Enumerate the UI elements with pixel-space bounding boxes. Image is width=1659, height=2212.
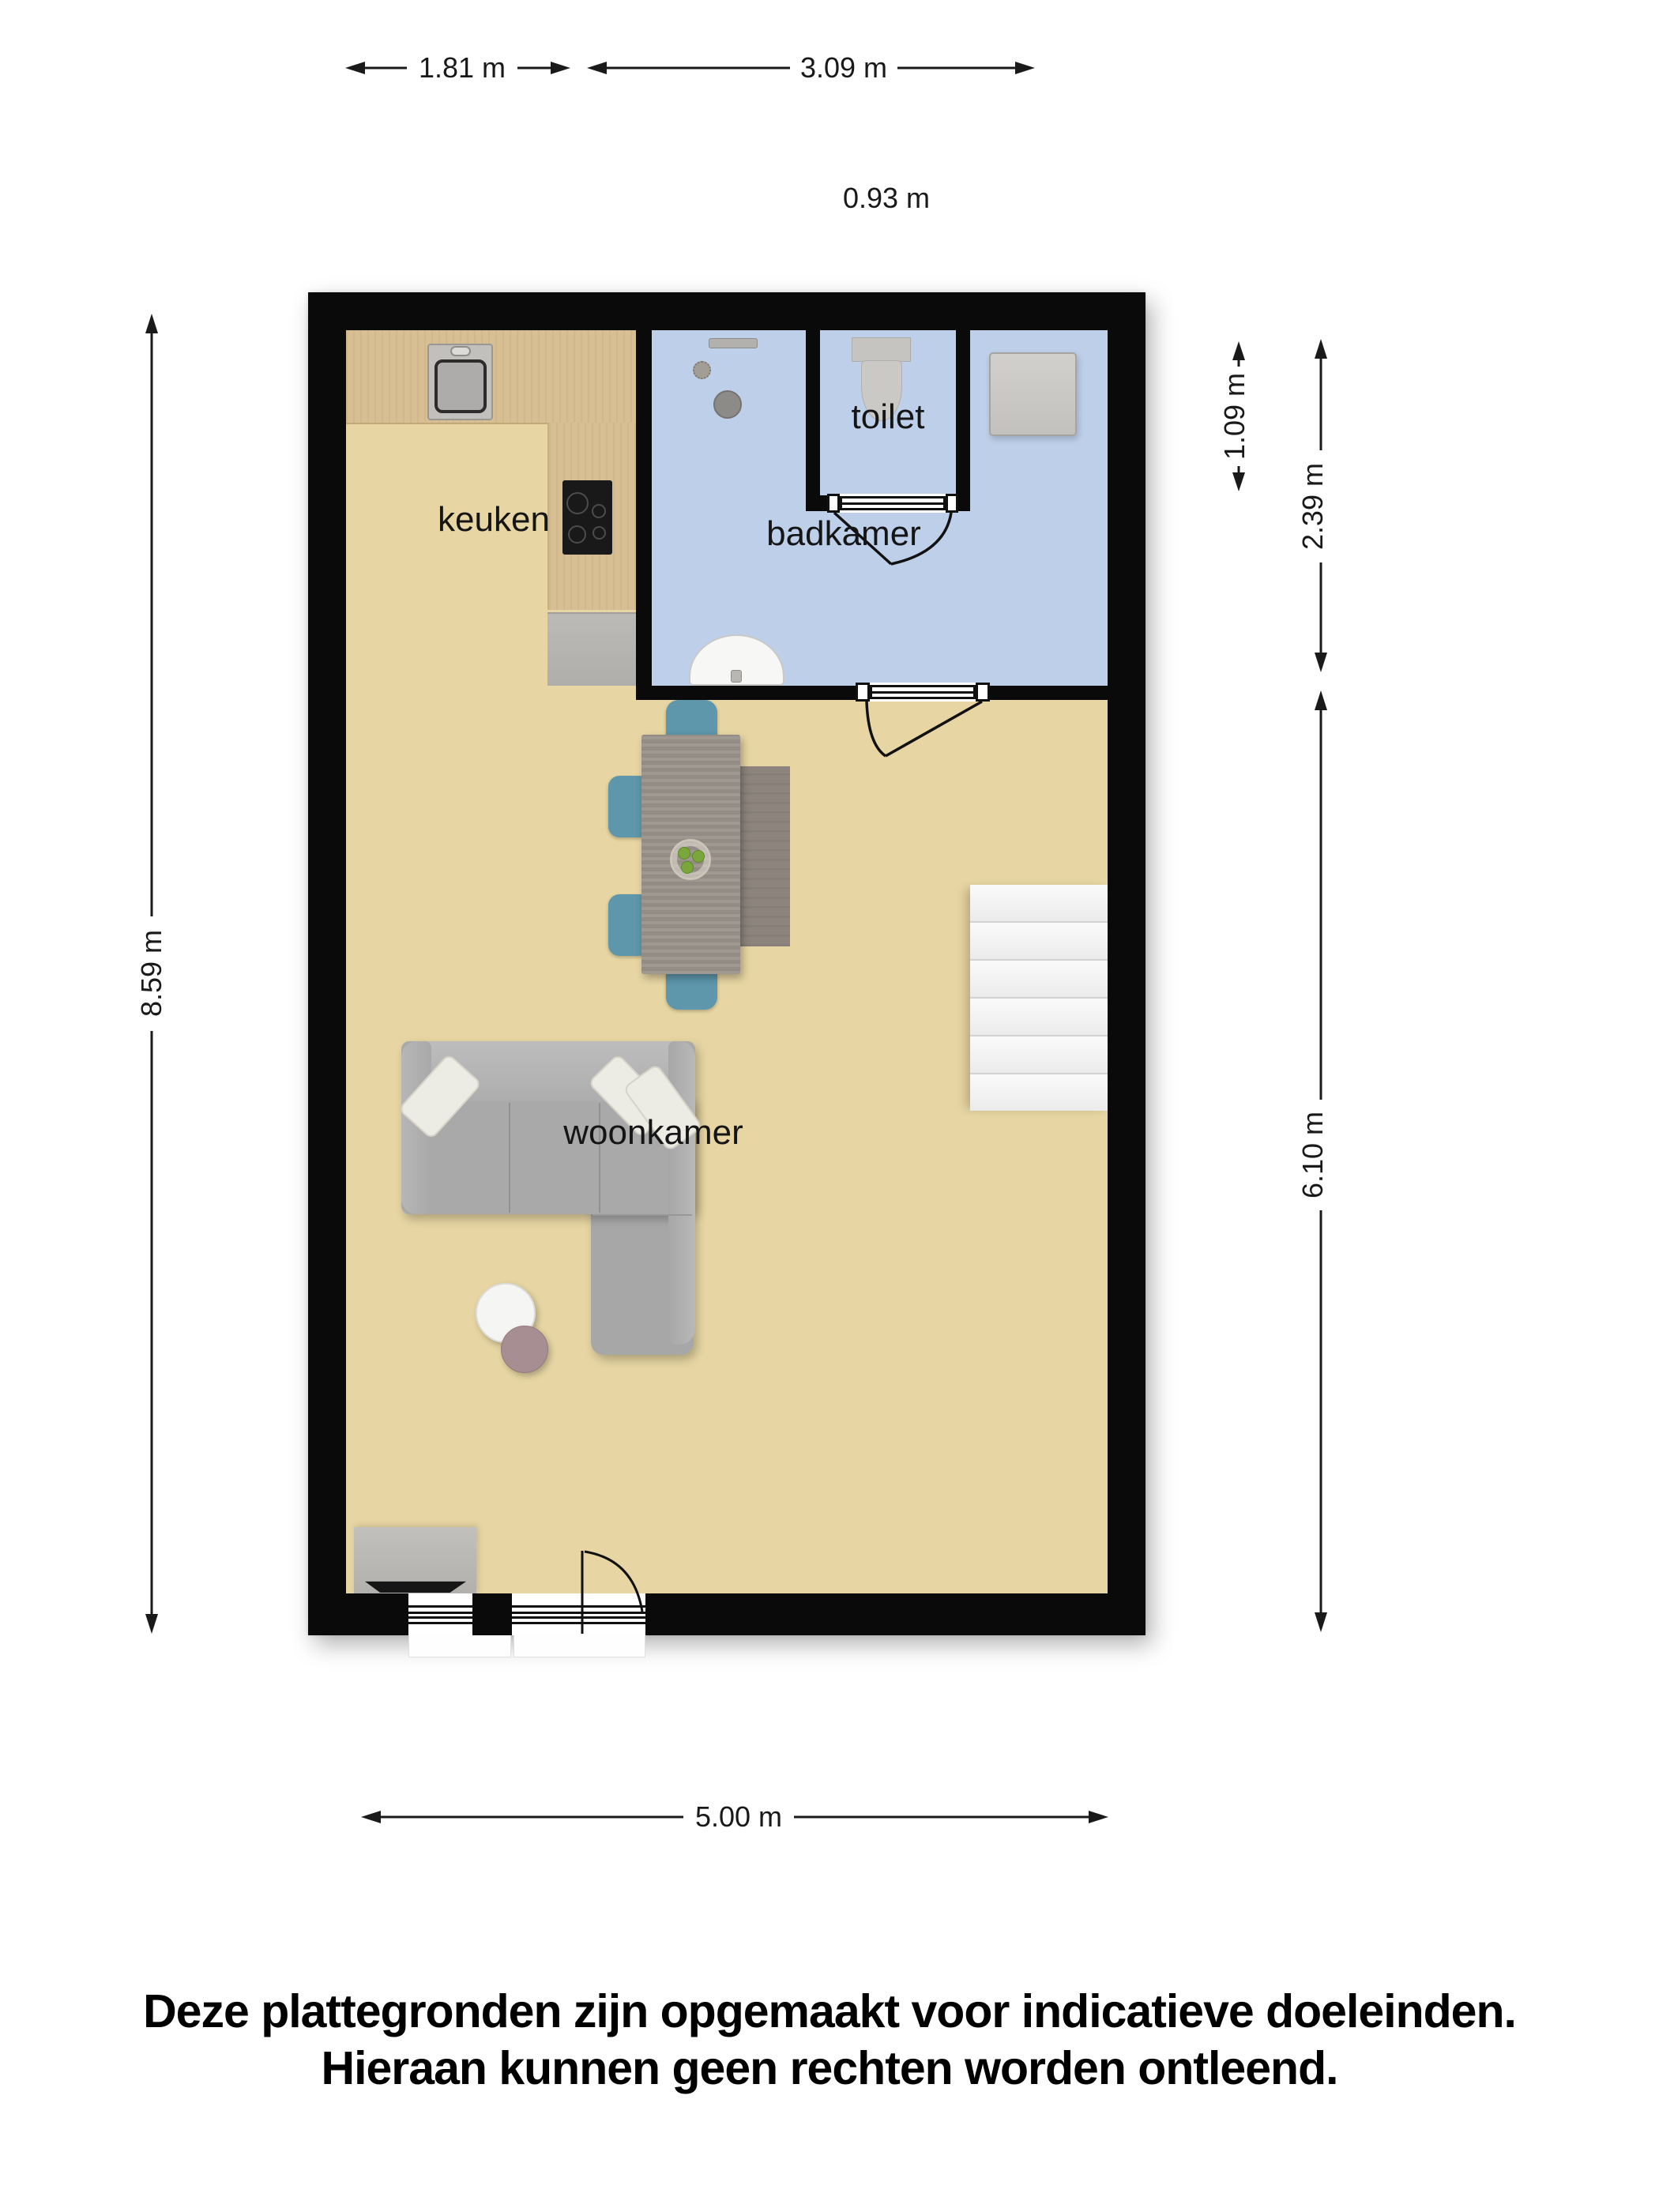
dim-label-8-59: 8.59 m <box>134 898 169 1048</box>
bathroom-door-post <box>976 683 990 702</box>
shower-drain-icon <box>693 361 711 379</box>
dim-label-0-93: 0.93 m <box>811 181 961 216</box>
sofa-seam <box>592 1214 692 1216</box>
toilet-door-post <box>946 494 958 513</box>
disclaimer-line-1: Deze plattegronden zijn opgemaakt voor i… <box>0 1984 1659 2038</box>
outer-wall-top <box>308 292 1145 330</box>
shower-arm-icon <box>709 338 758 348</box>
dim-arrow <box>145 1614 158 1634</box>
toilet-south-wall-stub <box>820 495 827 511</box>
dining-chair <box>666 969 717 1010</box>
sofa-seam <box>509 1103 510 1213</box>
outer-wall-right <box>1108 292 1145 1635</box>
dim-label-5-00: 5.00 m <box>664 1800 814 1834</box>
tv <box>365 1580 466 1593</box>
outer-wall-bottom-seg <box>472 1593 512 1635</box>
stair-tread <box>970 885 1108 923</box>
shower-head-icon <box>713 390 742 419</box>
bathroom-south-wall-seg <box>652 686 856 700</box>
entrance-door-frame <box>582 1605 645 1624</box>
dim-arrow <box>1315 1612 1327 1632</box>
outer-wall-bottom-seg <box>308 1593 408 1635</box>
dim-label-1-81: 1.81 m <box>387 51 537 85</box>
floor-plan: keuken toilet badkamer woonkamer 1.81 m … <box>0 0 1659 2212</box>
dim-arrow <box>1315 690 1327 710</box>
kitchen-appliance <box>547 612 636 686</box>
outer-wall-left <box>308 292 346 1635</box>
dim-label-2-39: 2.39 m <box>1296 431 1330 581</box>
dim-arrow <box>145 314 158 333</box>
dim-arrow <box>1089 1811 1108 1823</box>
toilet-south-wall-stub <box>958 495 970 511</box>
kitchen-faucet-icon <box>450 346 471 356</box>
toilet-door-post <box>827 494 840 513</box>
dim-label-3-09: 3.09 m <box>769 51 919 85</box>
window-sill <box>513 1635 645 1657</box>
dim-arrow <box>361 1811 381 1823</box>
room-label-bathroom: badkamer <box>717 513 970 555</box>
fruit-bowl-icon <box>670 839 711 880</box>
coffee-table-small <box>501 1326 548 1373</box>
window-frame <box>408 1605 472 1624</box>
toilet-door-leaf <box>840 496 946 510</box>
disclaimer-line-2: Hieraan kunnen geen rechten worden ontle… <box>0 2041 1659 2095</box>
stair-tread <box>970 999 1108 1036</box>
outer-wall-bottom-seg <box>645 1593 1145 1635</box>
bathroom-door-post <box>856 683 870 702</box>
dining-table-extension <box>738 766 790 946</box>
bathroom-door-leaf <box>870 685 976 699</box>
dim-arrow <box>1315 339 1327 359</box>
room-label-living-room: woonkamer <box>527 1112 780 1154</box>
bathroom-south-wall-seg <box>990 686 1108 700</box>
dim-arrow <box>551 62 570 74</box>
stair-tread <box>970 923 1108 961</box>
kitchen-sink-basin <box>434 359 487 413</box>
stair-tread <box>970 961 1108 999</box>
dim-arrow <box>1315 653 1327 672</box>
dim-arrow <box>345 62 365 74</box>
kitchen-bathroom-wall <box>636 330 652 700</box>
dim-label-1-09: 1.09 m <box>1217 341 1252 491</box>
room-label-kitchen: keuken <box>367 498 620 541</box>
stair-tread <box>970 1074 1108 1111</box>
stair-tread <box>970 1036 1108 1074</box>
dim-label-6-10: 6.10 m <box>1296 1080 1330 1230</box>
dim-arrow <box>587 62 607 74</box>
room-label-toilet: toilet <box>762 396 1014 438</box>
apple-icon <box>678 847 690 860</box>
dim-arrow <box>1015 62 1035 74</box>
stairs <box>970 885 1108 1104</box>
dining-chair <box>608 894 646 956</box>
window-sill <box>408 1635 511 1657</box>
dining-chair <box>608 776 646 837</box>
apple-icon <box>681 861 694 874</box>
apple-icon <box>692 850 705 863</box>
toilet-cistern <box>852 337 911 362</box>
window-frame <box>512 1605 582 1624</box>
bathroom-sink-faucet-icon <box>731 670 742 683</box>
